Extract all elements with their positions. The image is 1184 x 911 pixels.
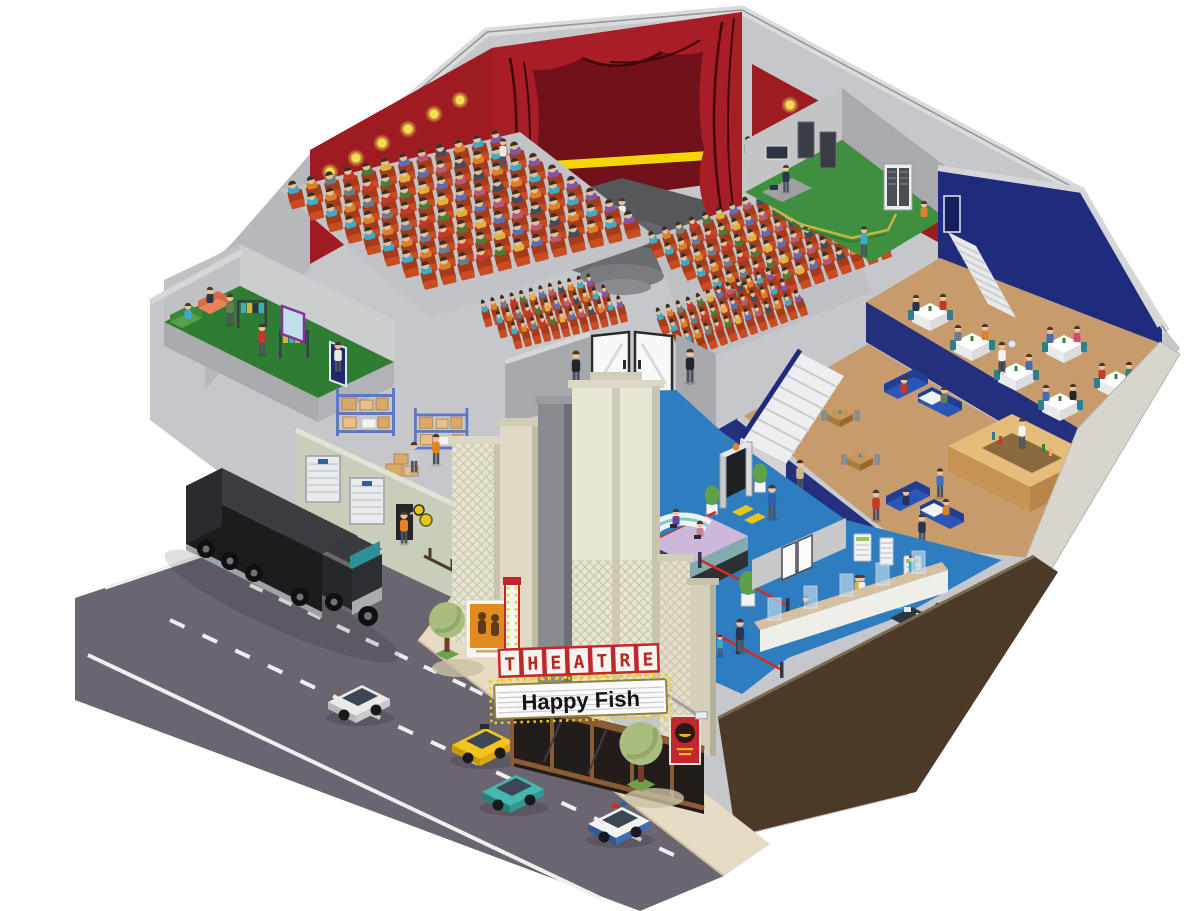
office-shelf <box>880 538 893 565</box>
receptionist-1 <box>673 509 680 525</box>
stair-door <box>944 196 960 232</box>
equip-cabinet-1 <box>798 122 814 158</box>
roller-door-1 <box>306 456 340 502</box>
server-rack <box>884 164 912 210</box>
receptionist-2 <box>697 521 704 537</box>
wall-screen <box>766 146 788 159</box>
equip-cabinet-2 <box>820 132 836 168</box>
illustration-canvas: THEATRE Happy Fish <box>0 0 1184 911</box>
police-light-bar <box>612 804 619 808</box>
technician-seated <box>921 201 928 217</box>
gate-topiary-left <box>705 485 719 514</box>
poster-logo <box>670 716 700 764</box>
office-door-right <box>798 535 812 573</box>
dock-sign <box>420 514 432 526</box>
actor-seated-1 <box>207 287 214 303</box>
roller-door-2 <box>350 478 384 524</box>
theatre-cutaway-illustration: THEATRE Happy Fish <box>0 0 1184 911</box>
office-door-left <box>782 542 796 580</box>
office-copier-1 <box>854 534 871 561</box>
gate-alarm-light <box>733 444 740 451</box>
gate-topiary-right <box>753 463 767 492</box>
actor-seated-2 <box>185 303 192 319</box>
marquee-subtitle: Happy Fish <box>521 686 640 715</box>
curtain-right <box>699 12 742 222</box>
